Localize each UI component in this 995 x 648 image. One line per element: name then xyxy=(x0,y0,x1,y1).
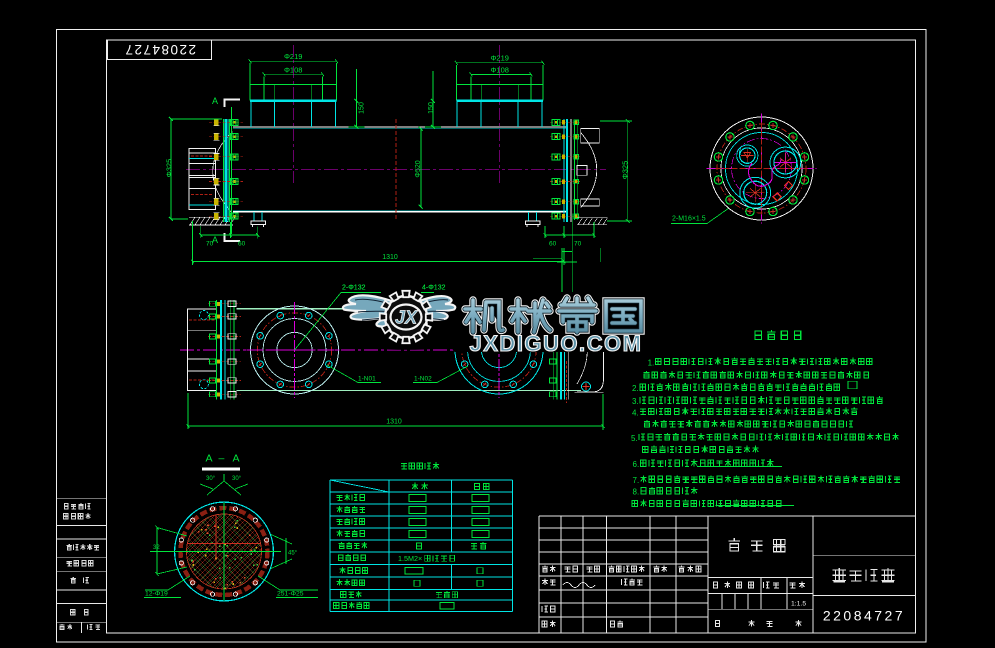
svg-text:1310: 1310 xyxy=(382,254,398,261)
svg-text:Φ325: Φ325 xyxy=(165,159,174,178)
svg-text:JX: JX xyxy=(395,308,418,328)
svg-text:1.: 1. xyxy=(648,358,655,367)
svg-text:32: 32 xyxy=(153,545,160,551)
svg-text:150: 150 xyxy=(428,102,435,114)
svg-text:1-N02: 1-N02 xyxy=(414,376,432,383)
svg-text:A: A xyxy=(212,96,218,106)
svg-text:5.: 5. xyxy=(631,434,638,443)
svg-text:A: A xyxy=(233,453,240,465)
svg-text:22084727: 22084727 xyxy=(823,608,905,624)
svg-text:45°: 45° xyxy=(288,551,298,557)
svg-text:1-N01: 1-N01 xyxy=(358,376,376,383)
svg-text:1:1.5: 1:1.5 xyxy=(791,601,806,608)
svg-text:2.: 2. xyxy=(632,384,639,393)
svg-text:2-M16×1.5: 2-M16×1.5 xyxy=(672,216,706,223)
svg-text:6.: 6. xyxy=(633,460,640,469)
svg-text:150: 150 xyxy=(359,102,366,114)
svg-text:60: 60 xyxy=(238,241,246,248)
svg-text:60: 60 xyxy=(549,241,557,248)
svg-text:–: – xyxy=(219,453,225,465)
svg-text:70: 70 xyxy=(206,241,214,248)
svg-text:22084727: 22084727 xyxy=(124,42,196,57)
svg-text:JXDIGUO.COM: JXDIGUO.COM xyxy=(470,331,643,356)
svg-text:3.: 3. xyxy=(632,397,639,406)
svg-text:30°: 30° xyxy=(232,476,242,482)
svg-text:Φ325: Φ325 xyxy=(621,161,630,180)
svg-text:30°: 30° xyxy=(206,476,216,482)
svg-text:7.: 7. xyxy=(633,476,640,485)
svg-text:4-Φ132: 4-Φ132 xyxy=(422,285,446,292)
svg-text:12-Φ19: 12-Φ19 xyxy=(145,591,168,598)
svg-text:4.: 4. xyxy=(632,408,639,417)
svg-text:251-Φ25: 251-Φ25 xyxy=(277,591,304,598)
svg-text:1310: 1310 xyxy=(386,418,402,425)
svg-text:2-Φ132: 2-Φ132 xyxy=(342,285,366,292)
svg-text:A: A xyxy=(206,453,213,465)
svg-text:Φ520: Φ520 xyxy=(415,160,422,177)
svg-text:1.5M2×: 1.5M2× xyxy=(398,554,422,563)
svg-text:8.: 8. xyxy=(633,488,640,497)
svg-text:70: 70 xyxy=(574,241,582,248)
